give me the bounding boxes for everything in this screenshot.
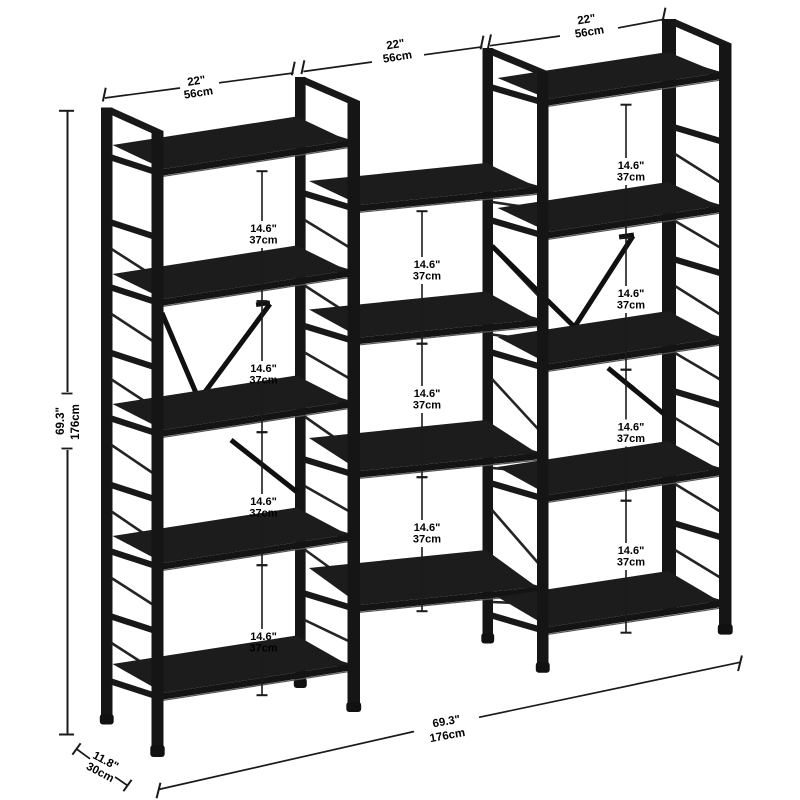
svg-text:37cm: 37cm [617, 300, 645, 312]
svg-text:37cm: 37cm [249, 508, 277, 520]
svg-text:176cm: 176cm [70, 404, 82, 440]
svg-text:14.6": 14.6" [250, 496, 277, 508]
svg-text:14.6": 14.6" [618, 422, 645, 434]
svg-text:14.6": 14.6" [618, 545, 645, 557]
svg-text:14.6": 14.6" [414, 522, 441, 534]
svg-text:14.6": 14.6" [414, 259, 441, 271]
svg-text:37cm: 37cm [413, 534, 441, 546]
svg-text:14.6": 14.6" [250, 363, 277, 375]
svg-text:14.6": 14.6" [618, 160, 645, 172]
svg-text:37cm: 37cm [413, 400, 441, 412]
svg-text:14.6": 14.6" [250, 223, 277, 235]
svg-text:37cm: 37cm [249, 643, 277, 655]
svg-text:37cm: 37cm [249, 235, 277, 247]
svg-text:14.6": 14.6" [250, 631, 277, 643]
svg-text:14.6": 14.6" [414, 388, 441, 400]
svg-text:37cm: 37cm [617, 172, 645, 184]
svg-text:37cm: 37cm [413, 271, 441, 283]
svg-text:14.6": 14.6" [618, 288, 645, 300]
svg-text:69.3": 69.3" [55, 407, 67, 435]
svg-text:37cm: 37cm [249, 375, 277, 387]
svg-text:37cm: 37cm [617, 557, 645, 569]
svg-text:37cm: 37cm [617, 433, 645, 445]
